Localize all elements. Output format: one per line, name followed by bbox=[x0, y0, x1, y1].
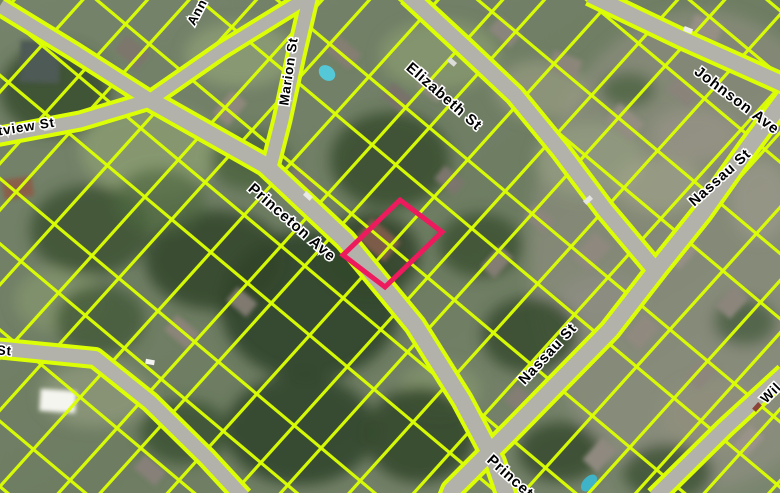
map-viewport[interactable]: tview St Ann Marion St Elizabeth St John… bbox=[0, 0, 780, 493]
street-label-st-fragment: St bbox=[0, 343, 12, 359]
parcel-map-canvas[interactable]: tview St Ann Marion St Elizabeth St John… bbox=[0, 0, 780, 493]
